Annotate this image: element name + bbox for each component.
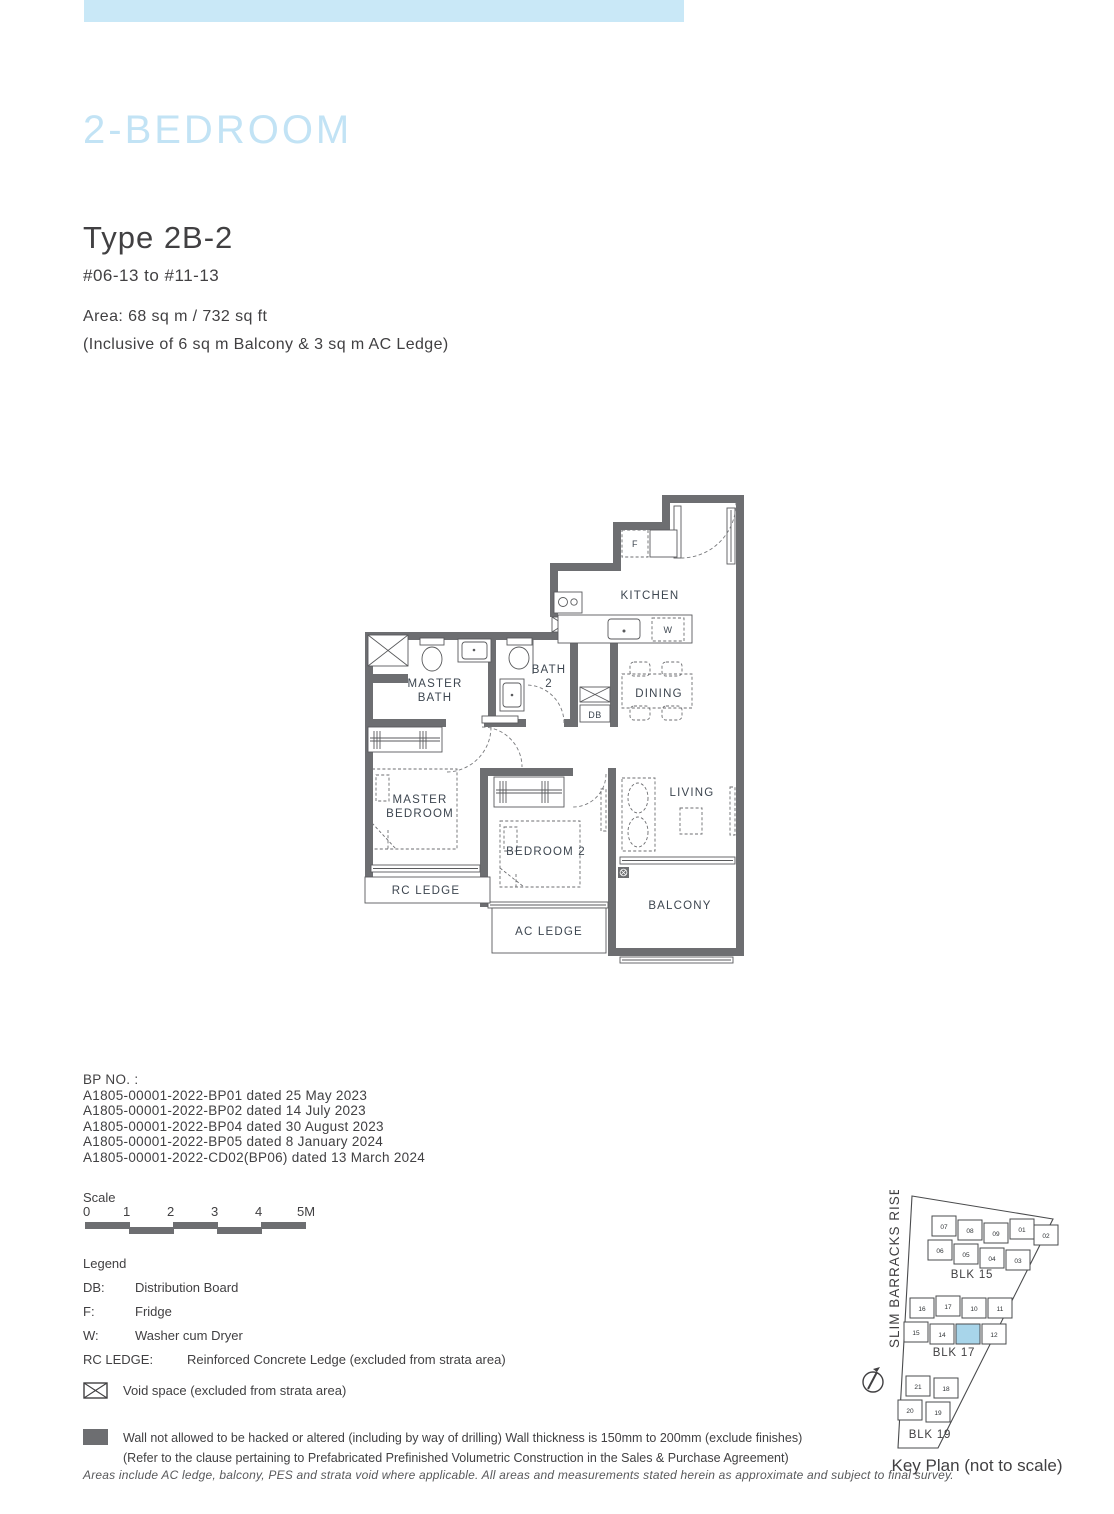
legend-key: DB: [83, 1280, 135, 1295]
keyplan-blocks: 070809010206050403BLK 1516171011151412BL… [898, 1216, 1058, 1441]
keyplan-unit-number: 16 [918, 1306, 926, 1313]
bp-line: A1805-00001-2022-BP05 dated 8 January 20… [83, 1134, 425, 1150]
coffee-table [680, 808, 702, 834]
master-bath-fixtures [420, 638, 491, 671]
room-label-balcony: BALCONY [648, 900, 711, 912]
scale-tick: 3 [211, 1204, 218, 1219]
keyplan-unit-number: 20 [906, 1408, 914, 1415]
wall-note-line2: (Refer to the clause pertaining to Prefa… [123, 1448, 802, 1468]
sofa [622, 778, 655, 851]
scale-tick: 0 [83, 1204, 90, 1219]
legend-list: DB:Distribution BoardF:FridgeW:Washer cu… [83, 1280, 506, 1376]
legend-row: DB:Distribution Board [83, 1280, 506, 1295]
keyplan-block-label: BLK 17 [933, 1347, 976, 1359]
legend-value: Washer cum Dryer [135, 1328, 243, 1343]
keyplan-unit-number: 11 [997, 1306, 1004, 1313]
scale-tick: 5M [297, 1204, 315, 1219]
scale-bar-segment [217, 1227, 262, 1234]
scale-bar [83, 1221, 313, 1237]
brochure-page: { "page": { "category_title": "2-BEDROOM… [0, 0, 1114, 1514]
room-label-bath2-2: 2 [545, 678, 553, 690]
bp-line: A1805-00001-2022-BP01 dated 25 May 2023 [83, 1088, 425, 1104]
bp-line: A1805-00001-2022-CD02(BP06) dated 13 Mar… [83, 1150, 425, 1166]
page-title: 2-BEDROOM [83, 108, 352, 153]
wall-swatch-icon [83, 1429, 108, 1445]
north-arrow-icon [863, 1367, 883, 1392]
scale-tick: 4 [255, 1204, 262, 1219]
bp-lines: A1805-00001-2022-BP01 dated 25 May 2023A… [83, 1088, 425, 1166]
room-label-master-bath-1: MASTER [407, 678, 462, 690]
scale-tick: 2 [167, 1204, 174, 1219]
legend-key: W: [83, 1328, 135, 1343]
bath2-door-arc [526, 685, 564, 723]
floorplan: KITCHEN MASTER BATH BATH 2 DB DINING LIV… [358, 478, 750, 978]
keyplan-unit-number: 17 [944, 1304, 952, 1311]
keyplan-unit-number: 04 [988, 1256, 996, 1263]
keyplan-unit-number: 21 [914, 1384, 922, 1391]
bath2-fixtures [500, 638, 533, 711]
keyplan-unit-number: 01 [1018, 1227, 1026, 1234]
keyplan-unit-number: 06 [936, 1248, 944, 1255]
keyplan-unit-number: 19 [934, 1410, 942, 1417]
keyplan-unit-number: 15 [912, 1330, 920, 1337]
legend-value: Distribution Board [135, 1280, 238, 1295]
hall-door-leaf [482, 716, 518, 723]
keyplan-unit-highlighted [956, 1324, 980, 1344]
bp-line: A1805-00001-2022-BP02 dated 14 July 2023 [83, 1103, 425, 1119]
legend-key: F: [83, 1304, 135, 1319]
keyplan-unit-number: 08 [966, 1228, 974, 1235]
room-label-bedroom2: BEDROOM 2 [506, 846, 586, 858]
legend-value: Fridge [135, 1304, 172, 1319]
keyplan-unit-number: 07 [940, 1224, 948, 1231]
sink-icon [608, 619, 640, 639]
bp-numbers: BP NO. : A1805-00001-2022-BP01 dated 25 … [83, 1072, 425, 1165]
legend-heading: Legend [83, 1256, 126, 1271]
keyplan-unit-number: 18 [942, 1386, 950, 1393]
keyplan-unit-number: 14 [938, 1332, 946, 1339]
room-label-fridge: F [632, 539, 638, 549]
street-label: SLIM BARRACKS RISE [887, 1190, 902, 1348]
wall-note-line1: Wall not allowed to be hacked or altered… [123, 1428, 802, 1448]
room-label-db: DB [588, 710, 602, 720]
hall-door-arc [482, 727, 522, 767]
curtain-strip [730, 787, 735, 835]
room-label-washer: W [664, 625, 673, 635]
keyplan-unit-number: 03 [1014, 1258, 1022, 1265]
room-label-ac-ledge: AC LEDGE [515, 926, 583, 938]
master-bath-door-arc [446, 727, 491, 772]
scale-bar-segment [129, 1227, 174, 1234]
room-label-master-bath-2: BATH [418, 692, 453, 704]
scale-bar-segment [85, 1222, 130, 1229]
room-label-master-bedroom-1: MASTER [392, 794, 447, 806]
void-space-note: Void space (excluded from strata area) [123, 1383, 346, 1398]
area-info: Area: 68 sq m / 732 sq ft (Inclusive of … [83, 303, 449, 359]
bp-line: A1805-00001-2022-BP04 dated 30 August 20… [83, 1119, 425, 1135]
wall-note-row: Wall not allowed to be hacked or altered… [83, 1428, 802, 1468]
keyplan-unit-number: 09 [992, 1231, 1000, 1238]
room-label-dining: DINING [635, 688, 682, 700]
unit-range: #06-13 to #11-13 [83, 266, 219, 286]
legend-row: F:Fridge [83, 1304, 506, 1319]
keyplan: SLIM BARRACKS RISE 070809010206050403BLK… [862, 1190, 1102, 1456]
area-line1: Area: 68 sq m / 732 sq ft [83, 303, 449, 331]
scale-tick: 1 [123, 1204, 130, 1219]
void-space-icon [83, 1382, 108, 1399]
keyplan-block-label: BLK 19 [909, 1429, 952, 1441]
keyplan-unit-number: 10 [970, 1306, 978, 1313]
top-accent-bar [84, 0, 684, 22]
room-label-kitchen: KITCHEN [621, 590, 680, 602]
scale-label: Scale [83, 1190, 116, 1205]
legend-row: W:Washer cum Dryer [83, 1328, 506, 1343]
area-line2: (Inclusive of 6 sq m Balcony & 3 sq m AC… [83, 331, 449, 359]
master-wardrobe [368, 727, 442, 752]
legend-value: Reinforced Concrete Ledge (excluded from… [187, 1352, 506, 1367]
bedroom2-wardrobe [494, 777, 564, 807]
bp-heading: BP NO. : [83, 1072, 425, 1088]
room-label-master-bedroom-2: BEDROOM [386, 808, 454, 820]
scale-bar-segment [261, 1222, 306, 1229]
curtain-strip2 [601, 789, 606, 831]
keyplan-unit-number: 05 [962, 1252, 970, 1259]
legend-key: RC LEDGE: [83, 1352, 187, 1367]
scale-ticks: 012345M [83, 1204, 323, 1218]
legend-row: RC LEDGE:Reinforced Concrete Ledge (excl… [83, 1352, 506, 1367]
keyplan-unit-number: 02 [1042, 1233, 1050, 1240]
keyplan-caption: Key Plan (not to scale) [862, 1456, 1092, 1476]
keyplan-unit-number: 12 [990, 1332, 998, 1339]
room-label-bath2-1: BATH [532, 664, 567, 676]
footer-disclaimer: Areas include AC ledge, balcony, PES and… [83, 1468, 954, 1482]
scale-bar-segment [173, 1222, 218, 1229]
room-label-living: LIVING [670, 787, 715, 799]
room-label-rc-ledge: RC LEDGE [392, 885, 460, 897]
keyplan-block-label: BLK 15 [951, 1269, 994, 1281]
cabinet-box [650, 530, 677, 557]
void-space-row: Void space (excluded from strata area) [83, 1382, 346, 1399]
unit-type-title: Type 2B-2 [83, 220, 233, 256]
